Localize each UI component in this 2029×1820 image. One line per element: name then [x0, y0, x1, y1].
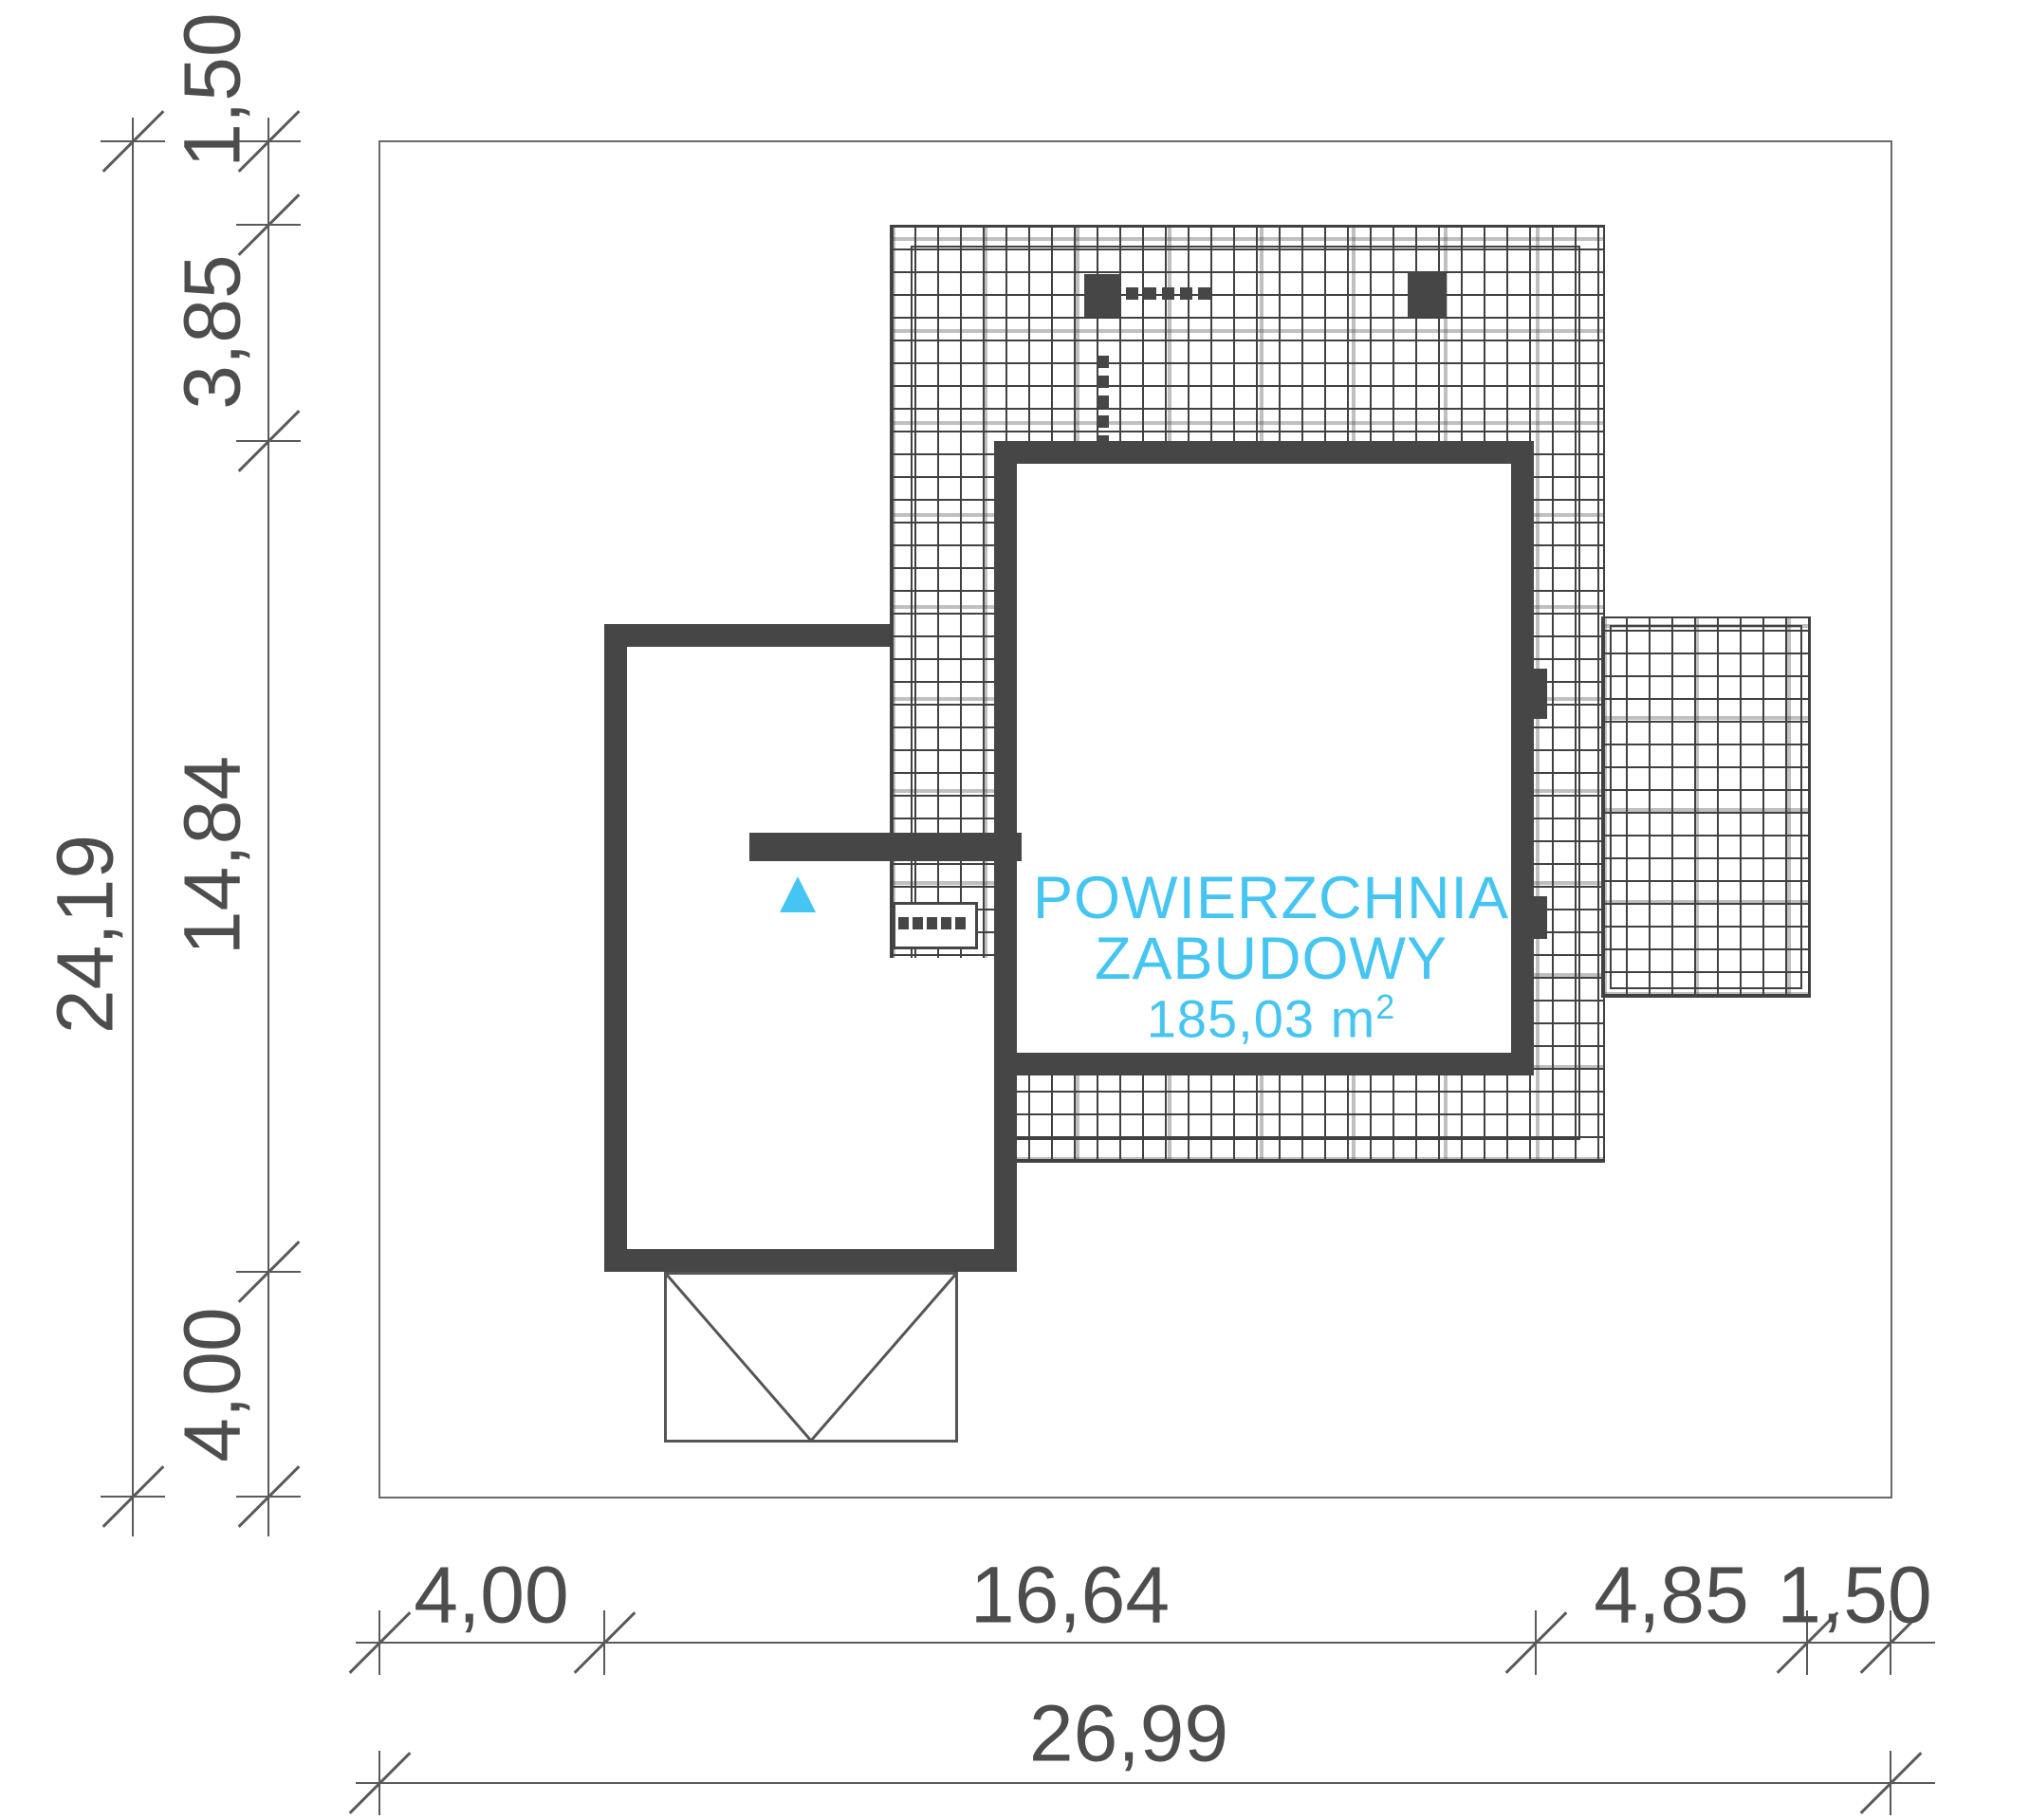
garage-door	[664, 1272, 958, 1443]
wing-wall-left	[604, 624, 627, 1272]
grate-bar	[913, 917, 923, 929]
dim-line-horizontal-total	[356, 1782, 1935, 1784]
doormat-grate	[893, 902, 978, 949]
dim-label-horizontal-seg4: 1,50	[1777, 1550, 1932, 1642]
area-label: POWIERZCHNIA ZABUDOWY 185,03 m2	[1001, 868, 1541, 1045]
dim-label-vertical-seg4: 4,00	[167, 1307, 259, 1462]
dim-label-vertical-total: 24,19	[40, 835, 132, 1034]
terrace-door-stub	[1534, 669, 1547, 719]
terrace-offset-line	[1610, 625, 1802, 989]
grate-bar	[927, 917, 937, 929]
wing-interior	[627, 647, 890, 1249]
chimney	[1084, 274, 1120, 317]
dim-label-horizontal-seg3: 4,85	[1594, 1550, 1749, 1642]
area-label-line1: POWIERZCHNIA	[1001, 868, 1541, 928]
grate-bar	[955, 917, 966, 929]
area-label-line2: ZABUDOWY	[1001, 928, 1541, 989]
dim-label-horizontal-total: 26,99	[1029, 1688, 1228, 1780]
porch-wall	[749, 833, 1022, 861]
entrance-triangle-icon	[780, 876, 816, 912]
site-plan-drawing: POWIERZCHNIA ZABUDOWY 185,03 m2 24,19 1,…	[0, 0, 2029, 1820]
dim-label-vertical-seg3: 14,84	[167, 756, 259, 955]
wing-interior-right	[890, 958, 994, 1249]
wing-wall-bottom	[604, 1249, 1017, 1272]
wing-wall-top	[604, 624, 890, 647]
dim-line-vertical-total	[132, 118, 134, 1536]
dim-label-horizontal-seg1: 4,00	[414, 1550, 569, 1642]
area-value: 185,03 m2	[1001, 990, 1541, 1046]
dim-line-vertical-segments	[267, 118, 269, 1536]
grate-bar	[941, 917, 951, 929]
grate-bar	[898, 917, 909, 929]
chimney	[1408, 272, 1447, 317]
dim-label-horizontal-seg2: 16,64	[970, 1550, 1170, 1642]
dim-label-vertical-seg1: 1,50	[167, 12, 259, 168]
dim-line-horizontal-segments	[356, 1642, 1935, 1644]
dim-label-vertical-seg2: 3,85	[167, 254, 259, 410]
